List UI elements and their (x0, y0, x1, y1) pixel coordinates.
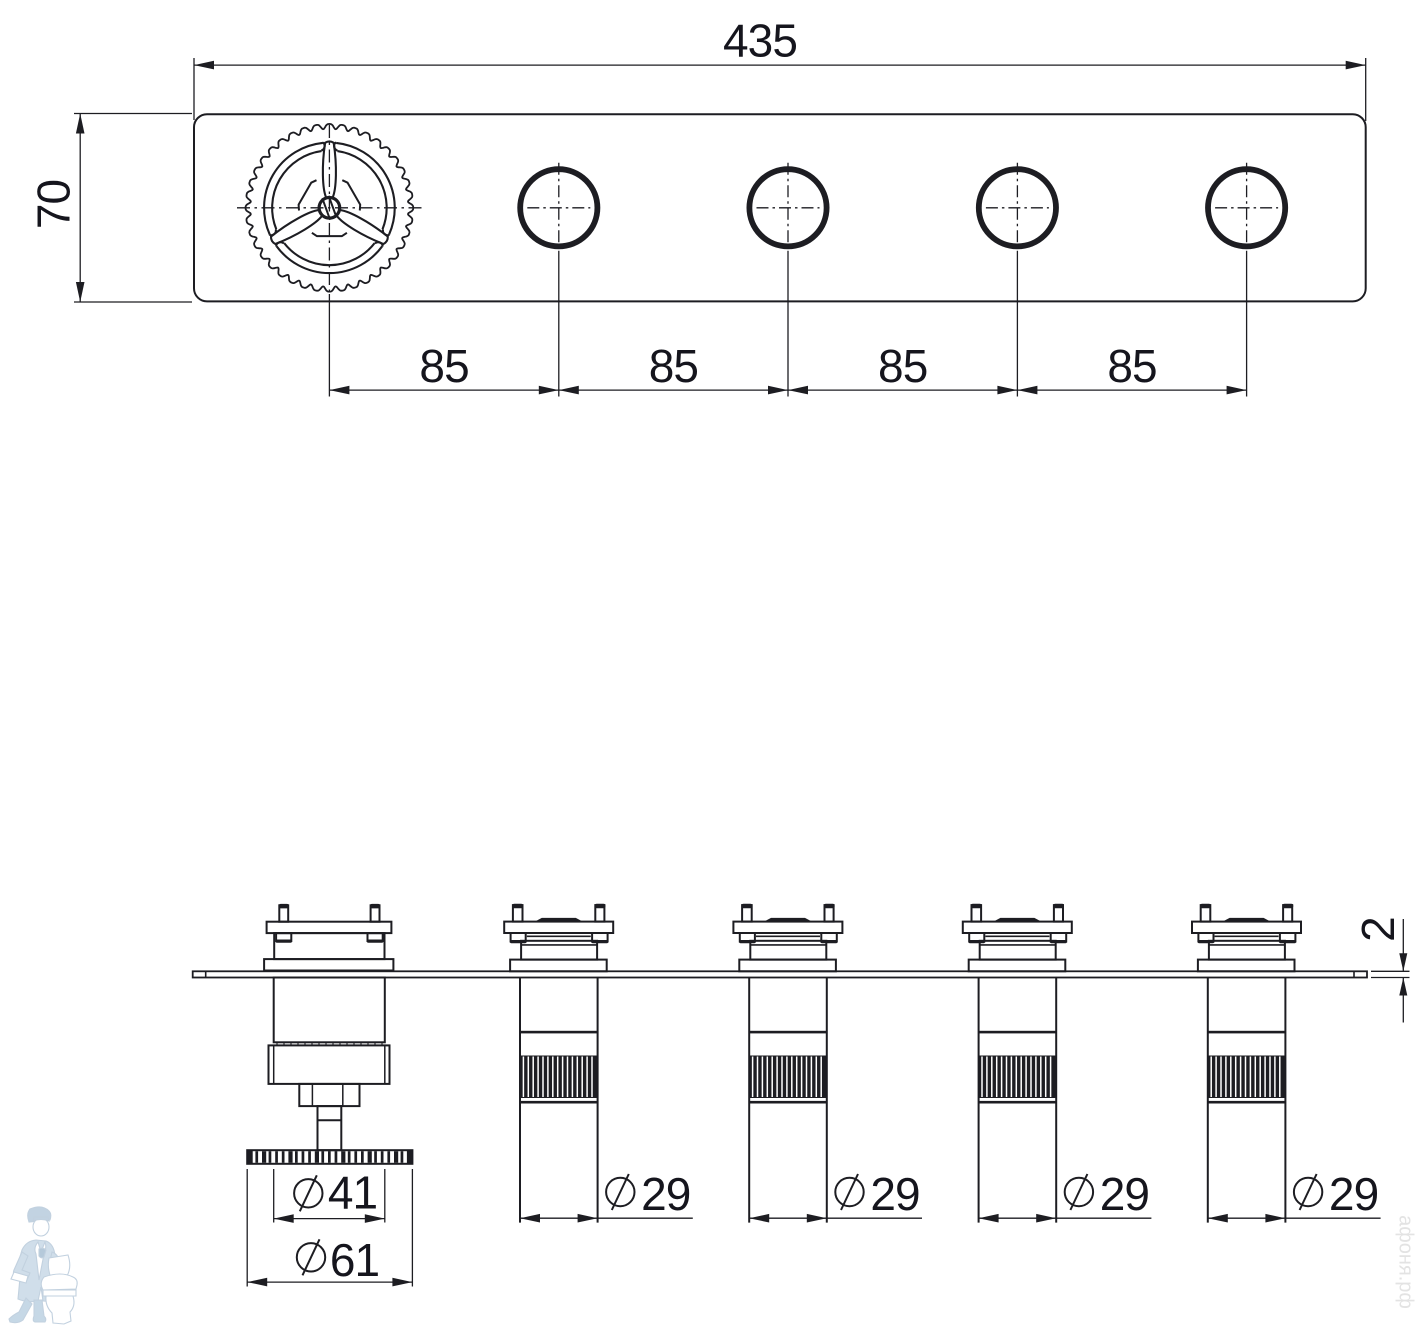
svg-text:29: 29 (1329, 1168, 1378, 1220)
svg-text:29: 29 (870, 1168, 919, 1220)
svg-text:85: 85 (1107, 340, 1156, 392)
svg-text:85: 85 (649, 340, 698, 392)
svg-text:85: 85 (419, 340, 468, 392)
svg-text:2: 2 (1352, 917, 1404, 942)
svg-text:29: 29 (641, 1168, 690, 1220)
svg-text:29: 29 (1100, 1168, 1149, 1220)
svg-text:41: 41 (328, 1167, 377, 1219)
svg-text:афоня.рф: афоня.рф (1395, 1215, 1417, 1309)
svg-text:85: 85 (878, 340, 927, 392)
svg-text:70: 70 (28, 180, 80, 229)
svg-text:61: 61 (330, 1234, 379, 1286)
svg-text:435: 435 (723, 15, 797, 67)
